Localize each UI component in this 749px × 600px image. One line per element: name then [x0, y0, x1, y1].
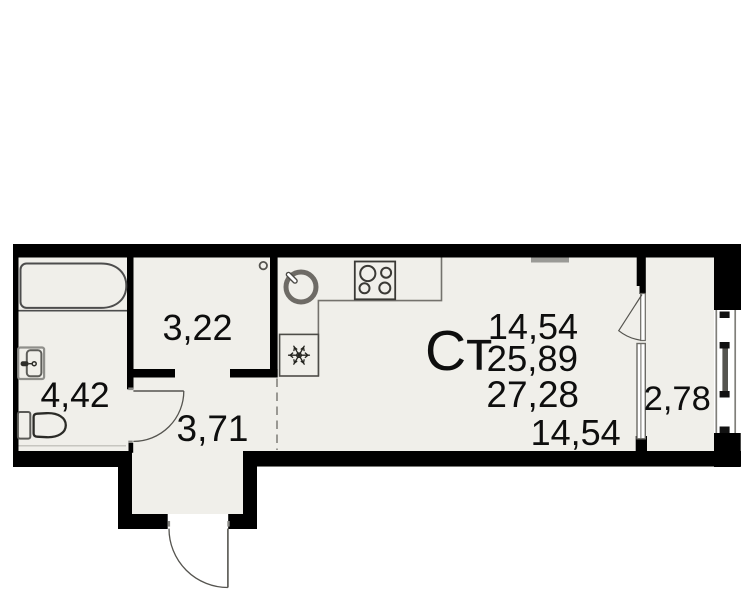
svg-text:2,78: 2,78	[644, 380, 711, 418]
svg-text:14,54: 14,54	[531, 412, 621, 453]
svg-text:4,42: 4,42	[41, 375, 110, 415]
svg-text:27,28: 27,28	[486, 374, 579, 415]
svg-text:25,89: 25,89	[487, 338, 578, 379]
svg-text:3,22: 3,22	[163, 307, 233, 348]
svg-text:Ст: Ст	[425, 319, 492, 383]
svg-text:3,71: 3,71	[177, 408, 249, 449]
